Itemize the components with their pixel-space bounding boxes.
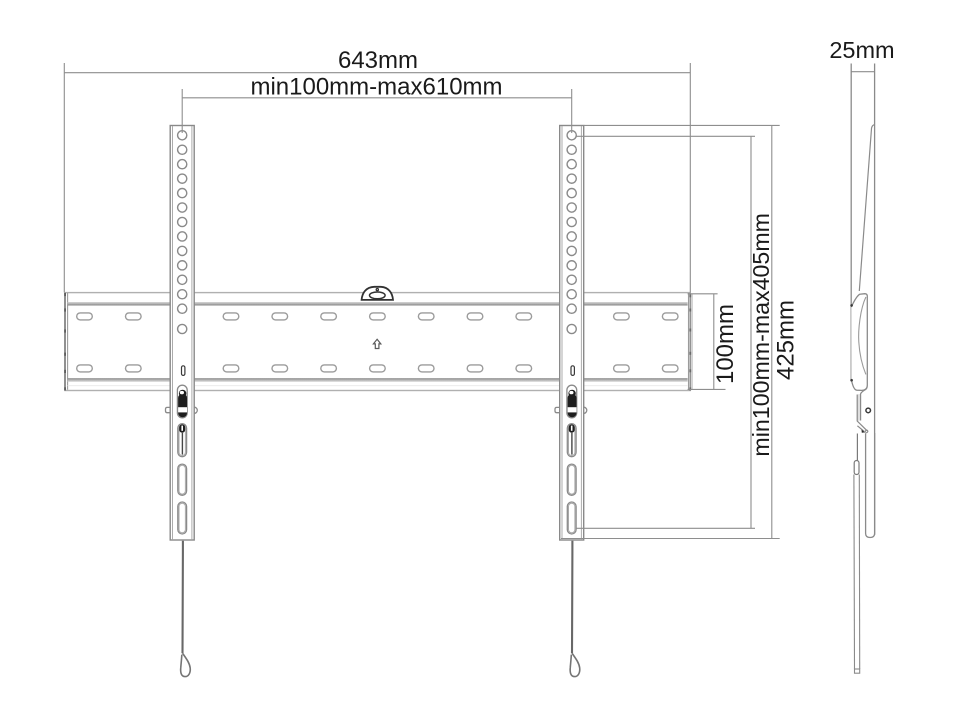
svg-text:100mm: 100mm (712, 304, 739, 384)
svg-text:425mm: 425mm (772, 300, 799, 380)
svg-text:25mm: 25mm (829, 37, 894, 63)
svg-text:min100mm-max405mm: min100mm-max405mm (748, 213, 774, 457)
svg-text:643mm: 643mm (338, 47, 418, 74)
svg-text:min100mm-max610mm: min100mm-max610mm (250, 73, 502, 100)
